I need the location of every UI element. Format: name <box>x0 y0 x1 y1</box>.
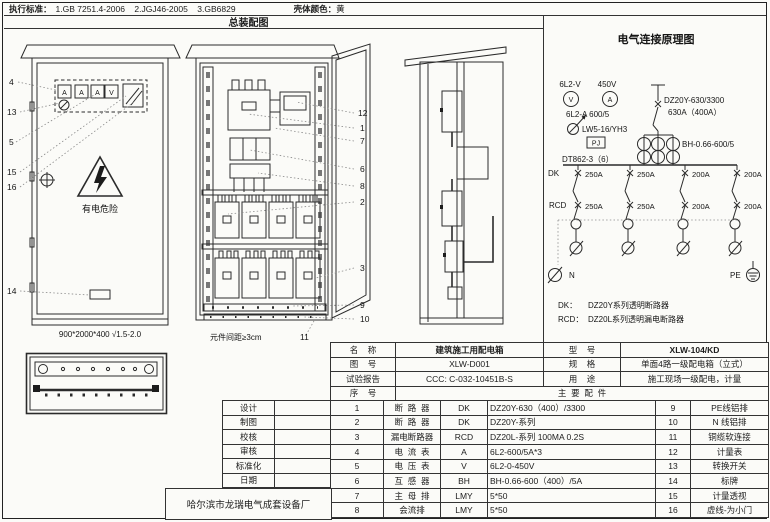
voltage-rating: 450V <box>597 80 616 89</box>
part-spec: DZ20Y-630（400）/3300 <box>488 401 656 416</box>
table-row: 日期 <box>223 473 331 488</box>
switch-model: LW5-16/YH3 <box>582 125 628 134</box>
table-row: 2断 路 器DKDZ20Y-系列10N 线铝排 <box>331 415 769 430</box>
drawing-sheet: 执行标准： 1.GB 7251.4-2006 2.JGJ46-2005 3.GB… <box>0 0 770 522</box>
part-name2: 铜缆软连接 <box>691 430 769 445</box>
test-report-value: CCC: C-032-10451B-S <box>396 372 544 387</box>
callout-12: 12 <box>358 108 368 118</box>
part-no2: 10 <box>656 415 691 430</box>
hazard-warning-text: 有电危险 <box>82 203 118 214</box>
part-no: 4 <box>331 444 384 459</box>
table-row: 审核 <box>223 444 331 459</box>
legend-dk-key: DK： <box>558 301 577 310</box>
rcd-breaker-row <box>215 251 320 298</box>
standards-list: 1.GB 7251.4-2006 2.JGJ46-2005 3.GB6829 <box>56 4 236 14</box>
part-code: BH <box>441 474 488 489</box>
part-no2: 13 <box>656 459 691 474</box>
part-code: RCD <box>441 430 488 445</box>
part-name2: 计量透视 <box>691 488 769 503</box>
part-no: 5 <box>331 459 384 474</box>
side-mounted-components <box>440 91 493 299</box>
voltmeter-symbol: 6L2-V V <box>559 80 581 107</box>
ammeter-3-label: A <box>95 90 100 97</box>
table-row: 校核 <box>223 430 331 445</box>
role-design: 设计 <box>223 401 275 416</box>
schematic-legend: DK： DZ20Y系列透明断路器 RCD： DZ20L系列透明漏电断路器 <box>558 300 684 324</box>
changeover-switch-icon <box>59 100 69 110</box>
part-spec: DZ20Y-系列 <box>488 415 656 430</box>
sign-cell <box>275 401 331 416</box>
side-view-drawing <box>400 40 518 335</box>
main-breaker-box <box>228 80 270 130</box>
sign-cell <box>275 430 331 445</box>
usage-value: 施工现场一级配电，计量 <box>621 372 769 387</box>
company-name-box: 哈尔滨市龙瑞电气成套设备厂 <box>165 488 332 520</box>
legend-rcd-key: RCD： <box>558 315 583 324</box>
sign-cell <box>275 459 331 474</box>
model-value: XLW-104/KD <box>621 343 769 358</box>
table-row: 名 称 建筑施工用配电箱 型 号 XLW-104/KD <box>331 343 769 358</box>
spacing-note: 元件间距≥3cm <box>210 332 262 342</box>
part-spec: 5*50 <box>488 488 656 503</box>
title-block: 设计 制图 校核 审核 标准化 日期 <box>222 400 331 488</box>
door-lock-icon <box>39 172 55 188</box>
callout-9: 9 <box>360 300 365 310</box>
callout-16: 16 <box>7 182 17 192</box>
part-name2: N 线铝排 <box>691 415 769 430</box>
callout-6: 6 <box>360 164 365 174</box>
part-no2: 15 <box>656 488 691 503</box>
part-name: 互 感 器 <box>384 474 441 489</box>
callout-8: 8 <box>360 181 365 191</box>
part-no: 7 <box>331 488 384 503</box>
branch-3 <box>677 165 690 256</box>
main-breaker-rating: 630A（400A） <box>668 108 721 117</box>
sign-cell <box>275 444 331 459</box>
callout-10: 10 <box>360 314 370 324</box>
role-draft: 制图 <box>223 415 275 430</box>
callout-14: 14 <box>7 286 17 296</box>
main-breaker-model: DZ20Y-630/3300 <box>664 96 725 105</box>
role-standardize: 标准化 <box>223 459 275 474</box>
part-name2: 虚线-为小门 <box>691 503 769 518</box>
dk-rating-2: 250A <box>637 170 656 179</box>
metering-window <box>123 84 143 107</box>
pj-meter-box: PJ <box>587 137 605 148</box>
ammeter-symbol: 450V A <box>597 80 617 107</box>
branch-1 <box>570 165 583 256</box>
pj-label: PJ <box>591 140 599 147</box>
bottom-busbars <box>204 304 326 320</box>
table-row: 7主 母 排LMY5*5015计量透视 <box>331 488 769 503</box>
part-spec: 6L2-600/5A*3 <box>488 444 656 459</box>
sign-cell <box>275 415 331 430</box>
part-no2: 12 <box>656 444 691 459</box>
upper-busbar <box>35 362 157 376</box>
part-name: 断 路 器 <box>384 401 441 416</box>
branch-2 <box>622 165 635 256</box>
table-row: 设计 <box>223 401 331 416</box>
part-name2: 标牌 <box>691 474 769 489</box>
ct-terminal-block <box>230 138 270 192</box>
a-glyph: A <box>607 97 612 104</box>
part-code: LMY <box>441 488 488 503</box>
sign-cell <box>275 473 331 488</box>
shell-color-value: 黄 <box>336 3 345 15</box>
parts-list-table: 1断 路 器DKDZ20Y-630（400）/33009PE线铝排 2断 路 器… <box>330 400 769 518</box>
table-row: 5电 压 表V6L2-0-450V13转换开关 <box>331 459 769 474</box>
internal-leader-lines <box>228 102 354 335</box>
table-row: 3漏电断路器RCDDZ20L-系列 100MA 0.2S11铜缆软连接 <box>331 430 769 445</box>
part-no2: 14 <box>656 474 691 489</box>
n-label: N <box>569 271 575 280</box>
front-dimension-text: 900*2000*400 √1.5-2.0 <box>59 330 142 339</box>
dk-breaker-row <box>215 195 320 238</box>
part-code: A <box>441 444 488 459</box>
pe-terminal: PE <box>730 261 760 282</box>
schematic-title: 电气连接原理图 <box>617 32 694 46</box>
main-breaker-symbol: DZ20Y-630/3300 630A（400A） <box>651 85 725 131</box>
dk-rating-3: 200A <box>692 170 711 179</box>
assembly-title-band: 总装配图 <box>4 15 543 30</box>
part-name2: 计量表 <box>691 444 769 459</box>
part-code: DK <box>441 401 488 416</box>
callout-15: 15 <box>7 167 17 177</box>
meter-panel: A A A V <box>55 80 147 112</box>
spec-label: 规 格 <box>544 357 621 372</box>
table-row: 6互 感 器BHBH-0.66-600（400）/5A14标牌 <box>331 474 769 489</box>
standards-label: 执行标准： <box>9 3 52 15</box>
name-label: 名 称 <box>331 343 396 358</box>
cabinet-side-outline <box>405 47 506 324</box>
busbar-detail-drawing <box>25 352 170 416</box>
callout-11: 11 <box>300 332 309 342</box>
part-no2: 9 <box>656 401 691 416</box>
main-parts-header: 主 要 配 件 <box>396 386 769 401</box>
rcd-row-label: RCD <box>549 201 567 210</box>
rcd-rating-4: 200A <box>744 202 763 211</box>
part-spec: BH-0.66-600（400）/5A <box>488 474 656 489</box>
dk-rating-1: 250A <box>585 170 604 179</box>
branch-4 <box>729 165 742 256</box>
pe-label: PE <box>730 271 741 280</box>
part-no: 6 <box>331 474 384 489</box>
internal-view-drawing: 12 1 7 6 8 2 3 9 10 11 元件间距≥3cm <box>186 40 386 350</box>
feeder-branches <box>558 165 742 265</box>
cross-rail-1 <box>202 190 328 195</box>
electric-hazard-icon <box>78 157 122 196</box>
nameplate <box>90 290 110 299</box>
ammeter-model: 6L2-A 600/5 <box>566 110 610 119</box>
table-row: 序 号 主 要 配 件 <box>331 386 769 401</box>
part-code: DK <box>441 415 488 430</box>
ammeter-1-label: A <box>62 90 67 97</box>
part-no: 3 <box>331 430 384 445</box>
front-view-callouts: 4 13 5 15 16 14 <box>7 77 17 296</box>
usage-label: 用 途 <box>544 372 621 387</box>
role-check: 校核 <box>223 430 275 445</box>
company-name: 哈尔滨市龙瑞电气成套设备厂 <box>187 497 311 511</box>
ammeter-2-label: A <box>79 90 84 97</box>
part-spec: 6L2-0-450V <box>488 459 656 474</box>
part-no: 1 <box>331 401 384 416</box>
part-name: 电 压 表 <box>384 459 441 474</box>
part-spec: 5*50 <box>488 503 656 518</box>
product-info-table: 名 称 建筑施工用配电箱 型 号 XLW-104/KD 图 号 XLW-D001… <box>330 342 769 401</box>
test-report-label: 试验报告 <box>331 372 396 387</box>
callout-13: 13 <box>7 107 17 117</box>
front-view-leader-lines <box>16 82 134 295</box>
internal-view-callouts: 12 1 7 6 8 2 3 9 10 11 <box>300 108 370 342</box>
energy-meter-model: DT862-3（6） <box>562 155 614 164</box>
rcd-rating-3: 200A <box>692 202 711 211</box>
seq-header: 序 号 <box>331 386 396 401</box>
cross-rail-2 <box>202 244 328 249</box>
name-value: 建筑施工用配电箱 <box>396 343 544 358</box>
current-transformers: BH-0.66-600/5 <box>637 131 734 165</box>
callout-1: 1 <box>360 123 365 133</box>
part-no: 8 <box>331 503 384 518</box>
part-no: 2 <box>331 415 384 430</box>
shell-color-label: 壳体颜色： <box>294 3 337 15</box>
callout-5: 5 <box>9 137 14 147</box>
table-row: 8会流排LMY5*5016虚线-为小门 <box>331 503 769 518</box>
drawing-no-label: 图 号 <box>331 357 396 372</box>
voltmeter-label: V <box>109 90 114 97</box>
ct-model: BH-0.66-600/5 <box>682 140 735 149</box>
assembly-title: 总装配图 <box>229 14 269 29</box>
table-row: 试验报告 CCC: C-032-10451B-S 用 途 施工现场一级配电，计量 <box>331 372 769 387</box>
legend-rcd-text: DZ20L系列透明漏电断路器 <box>588 314 684 324</box>
spec-value: 单面4路一级配电箱（立式） <box>621 357 769 372</box>
table-row: 4电 流 表A6L2-600/5A*312计量表 <box>331 444 769 459</box>
part-name: 漏电断路器 <box>384 430 441 445</box>
electrical-schematic: 电气连接原理图 6L2-V V 450V A 6L2-A 600/5 LW5-1… <box>544 15 769 342</box>
part-name: 电 流 表 <box>384 444 441 459</box>
voltmeter-model: 6L2-V <box>559 80 581 89</box>
part-name: 断 路 器 <box>384 415 441 430</box>
callout-7: 7 <box>360 136 365 146</box>
rcd-rating-1: 250A <box>585 202 604 211</box>
table-row: 1断 路 器DKDZ20Y-630（400）/33009PE线铝排 <box>331 401 769 416</box>
v-glyph: V <box>568 97 573 104</box>
kwh-meter-box <box>270 92 310 125</box>
legend-dk-text: DZ20Y系列透明断路器 <box>588 300 669 310</box>
table-row: 标准化 <box>223 459 331 474</box>
callout-2: 2 <box>360 197 365 207</box>
table-row: 制图 <box>223 415 331 430</box>
table-row: 图 号 XLW-D001 规 格 单面4路一级配电箱（立式） <box>331 357 769 372</box>
part-code: V <box>441 459 488 474</box>
lower-busbar <box>33 385 159 395</box>
part-no2: 11 <box>656 430 691 445</box>
part-name: 主 母 排 <box>384 488 441 503</box>
role-review: 审核 <box>223 444 275 459</box>
part-name: 会流排 <box>384 503 441 518</box>
front-view-drawing: A A A V 有电危险 <box>6 40 186 345</box>
callout-4: 4 <box>9 77 14 87</box>
part-code: LMY <box>441 503 488 518</box>
dk-row-label: DK <box>548 169 560 178</box>
dk-rating-4: 200A <box>744 170 763 179</box>
rcd-rating-2: 250A <box>637 202 656 211</box>
part-name2: PE线铝排 <box>691 401 769 416</box>
part-name2: 转换开关 <box>691 459 769 474</box>
model-label: 型 号 <box>544 343 621 358</box>
drawing-no-value: XLW-D001 <box>396 357 544 372</box>
part-spec: DZ20L-系列 100MA 0.2S <box>488 430 656 445</box>
callout-3: 3 <box>360 263 365 273</box>
n-terminal: N <box>548 267 575 283</box>
part-no2: 16 <box>656 503 691 518</box>
role-date: 日期 <box>223 473 275 488</box>
